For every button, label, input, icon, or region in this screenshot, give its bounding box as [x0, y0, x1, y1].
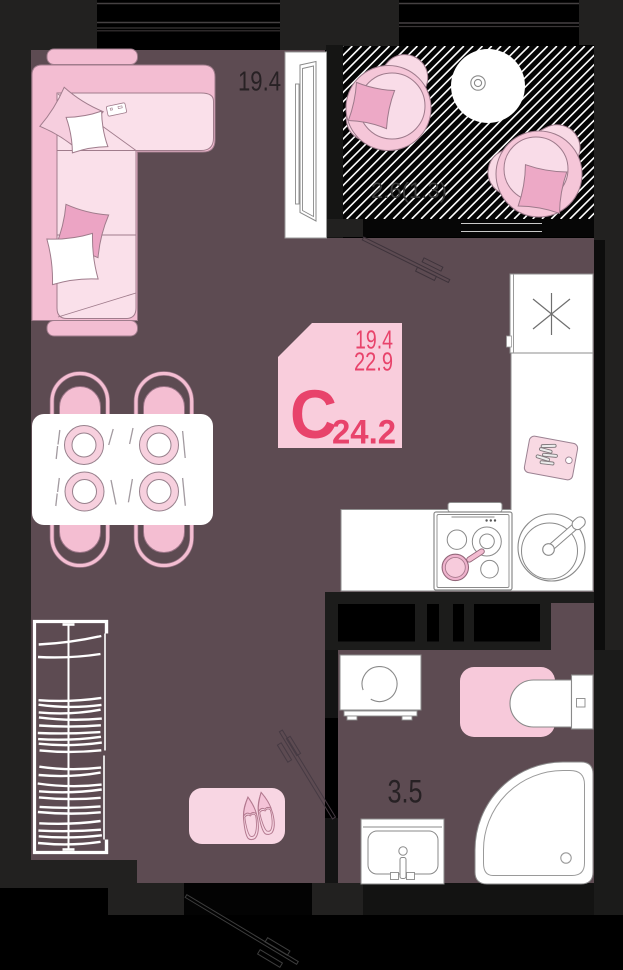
svg-text:C: C — [290, 376, 337, 453]
svg-text:3.5: 3.5 — [388, 774, 423, 810]
svg-text:2.6(1.3): 2.6(1.3) — [371, 178, 447, 203]
svg-text:22.9: 22.9 — [354, 347, 393, 377]
svg-text:19.4: 19.4 — [238, 66, 281, 97]
svg-text:24.2: 24.2 — [332, 414, 396, 452]
